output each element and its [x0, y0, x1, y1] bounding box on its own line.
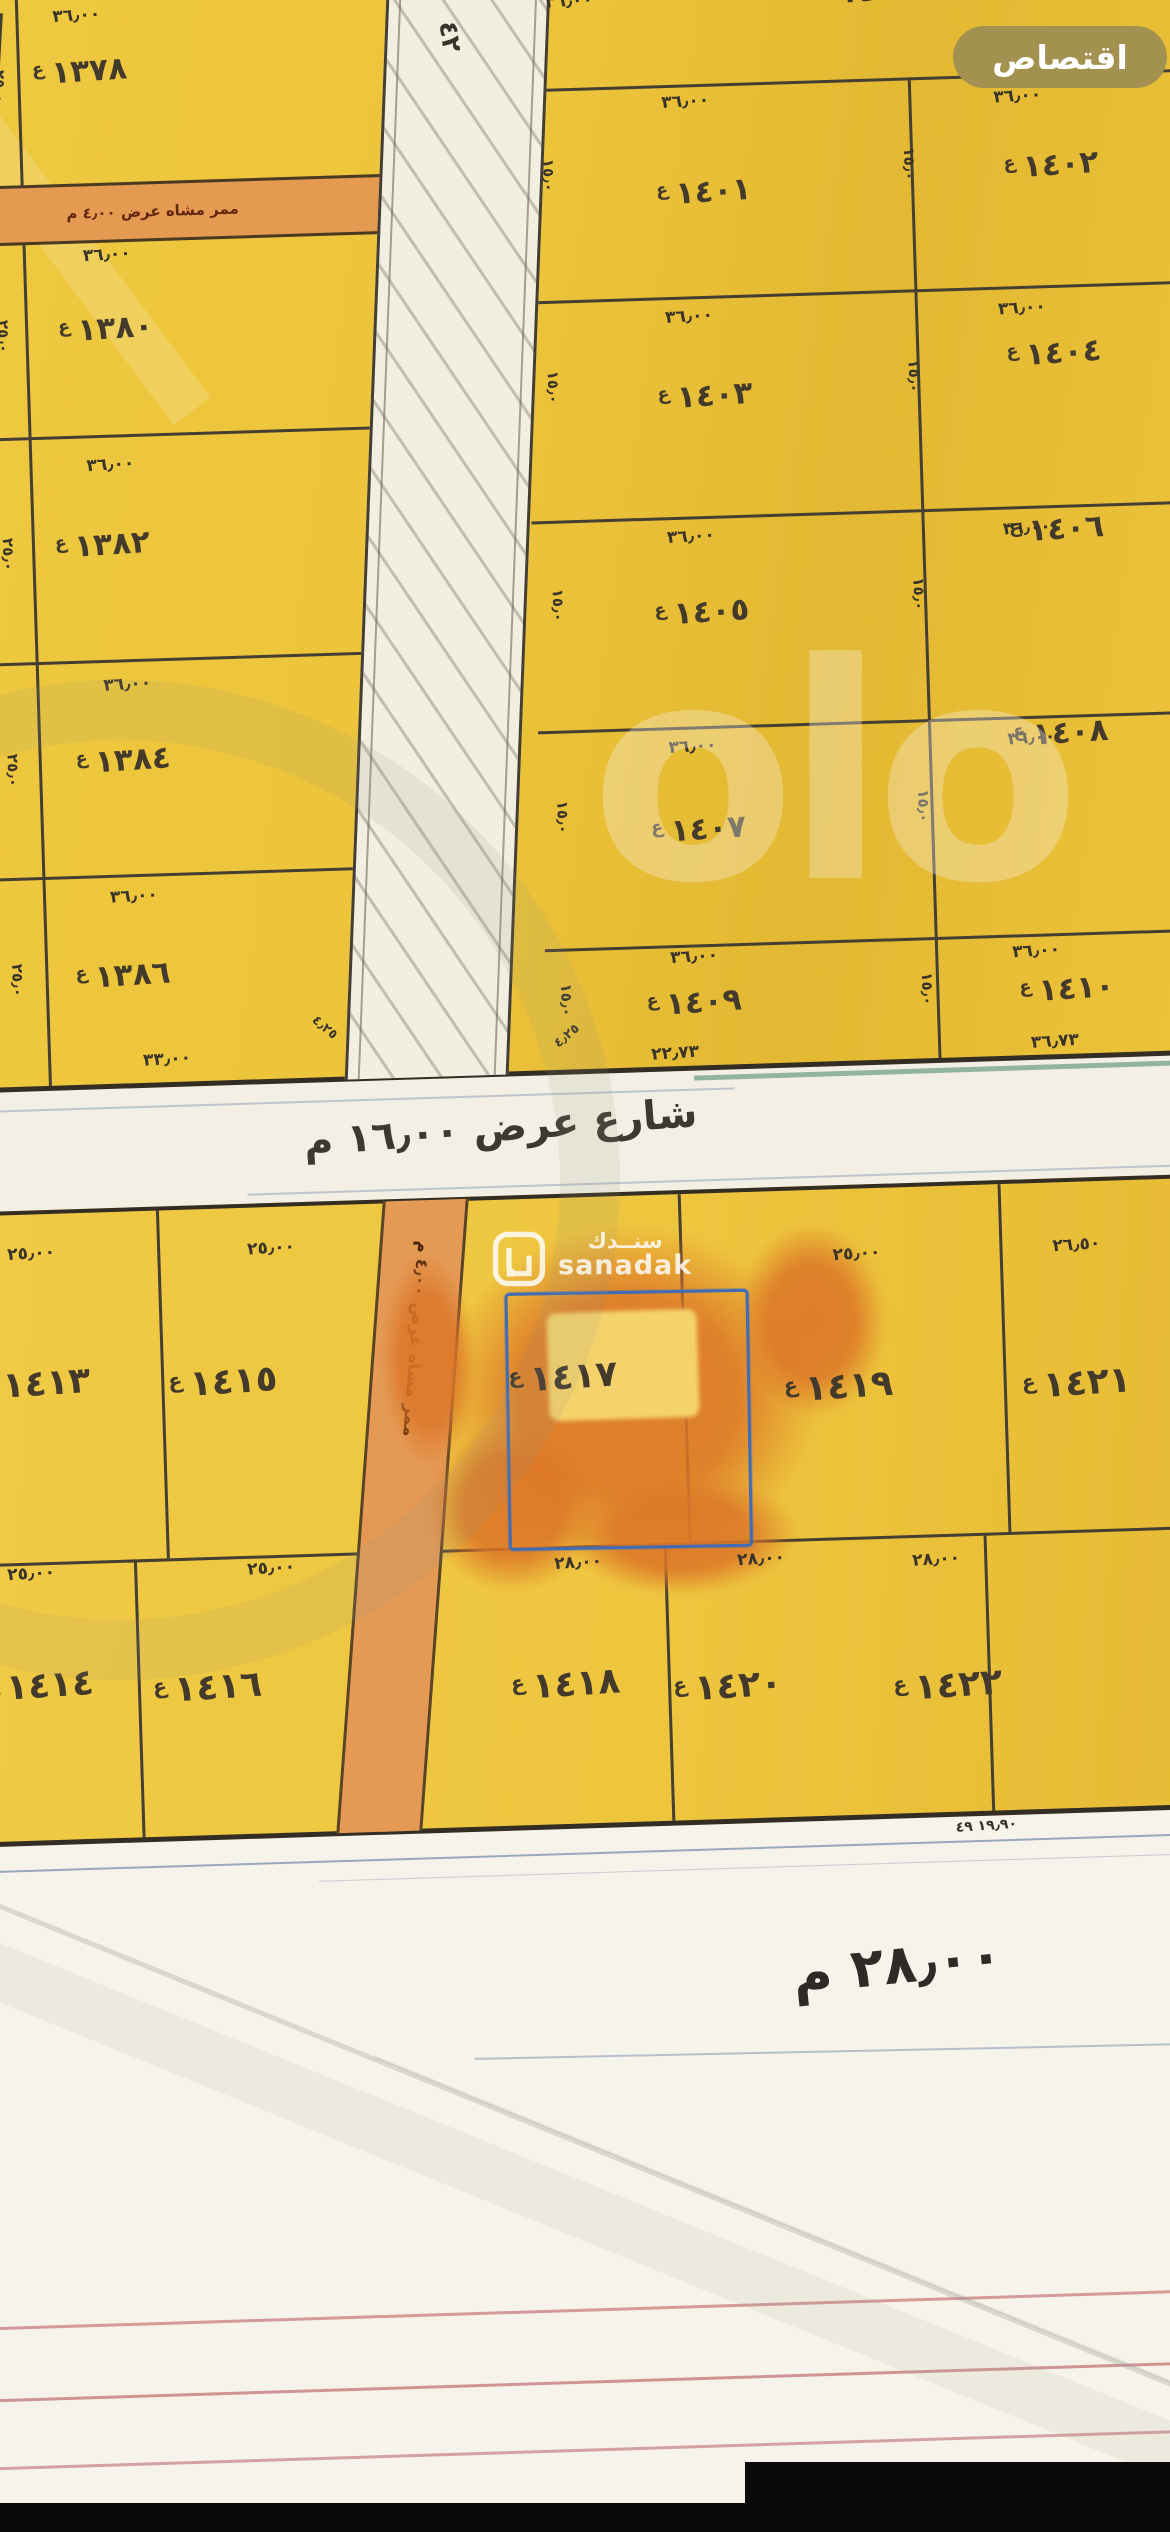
plot-number: ١٤١٩	[804, 1363, 894, 1410]
plot-side-dim: ١٥٫٠	[914, 789, 933, 823]
plot-side-dim: ١٥٫٠	[539, 158, 558, 192]
plot-number: ١٤٢١	[1042, 1359, 1132, 1406]
crop-badge-label: اقتصاص	[992, 38, 1128, 77]
plot-area-mark: ع	[57, 316, 71, 338]
sanadak-watermark: سنــدك sanadak	[492, 1230, 692, 1288]
plot-bottom-dim: ٣٦٫٧٣	[1030, 1030, 1079, 1053]
plot-top-dim: ٢٨٫٠٠	[737, 1547, 786, 1570]
plot-label-4: ع١٤١٠	[1018, 968, 1115, 1010]
plot-side-dim: ١٥٫٠	[900, 147, 919, 181]
plot-area-mark: ع	[672, 1672, 688, 1697]
sanadak-latin-label: sanadak	[558, 1252, 692, 1280]
plot-label-3: ع١٤٠٧	[650, 808, 747, 850]
plot-top-dim: ٣٦٫٠٠	[86, 453, 135, 476]
plot-area-mark: ع	[1021, 1369, 1037, 1394]
plot-side-dim: ١٥٫٠	[905, 359, 924, 393]
plot-number: ١٤١٠	[1038, 968, 1116, 1009]
plot-side-dim: ٢٥٫٠	[0, 320, 13, 354]
plot-label-4: ع١٤٢١	[1021, 1359, 1133, 1407]
plot-bottom-dim: ٢٢٫٧٣	[651, 1042, 700, 1065]
plot-number: ١٣٧٨	[50, 50, 128, 91]
plot-label-1: ع١٤٠٣	[657, 375, 754, 417]
plot-top-dim: ٣٦٫٠٠	[666, 525, 715, 548]
screenshot-root: { "badge": { "label": "اقتصاص" }, "water…	[0, 0, 1170, 2532]
plot-label-3: ع١٤٢٠	[672, 1662, 784, 1710]
plot-area-mark: ع	[892, 1671, 908, 1696]
plot-number: ١٣٨٢	[73, 524, 151, 565]
plot-area-mark: ع	[657, 383, 671, 405]
plot-side-dim: ٢٥٫٠	[0, 538, 18, 572]
plot-label-2: ع١٤٠٥	[653, 591, 750, 633]
plot-top-dim: ٢٨٫٠٠	[912, 1548, 961, 1571]
plot-number: ١٤٠١	[674, 171, 752, 212]
plot-top-dim: ٢٥٫٠٠	[832, 1242, 881, 1265]
plot-label-1: ع١٣٨٠	[57, 308, 154, 350]
plot-label-1: ع١٤٠٤	[1005, 332, 1102, 374]
plot-area-mark: ع	[1006, 340, 1020, 362]
sanadak-arabic-label: سنــدك	[558, 1230, 692, 1252]
plot-top-dim: ٣٦٫٠٠	[668, 735, 717, 758]
plot-side-dim: ١٥٫٠	[544, 370, 563, 404]
plot-label-2: ع١٤١٨	[510, 1660, 622, 1708]
plot-number: ١٤٠٤	[1025, 332, 1103, 373]
plot-top-dim: ٣٦٫٠٠	[82, 243, 131, 266]
plot-area-mark: ع	[646, 989, 660, 1011]
plot-top-dim: ٣٦٫٠٠	[1012, 939, 1061, 962]
plot-label-2: ع١٣٨٢	[54, 524, 151, 566]
plot-side-dim: ١٥٫٠	[549, 588, 568, 622]
bottom-street-area	[0, 1805, 1170, 2532]
plot-number: ١٤٢٢	[913, 1661, 1003, 1708]
plot-label-0: ع١٣٧٨	[31, 50, 128, 92]
plot-label-4: ع١٤٠٩	[646, 981, 743, 1023]
plot-area-mark: ع	[510, 1670, 526, 1695]
plot-area-mark: ع	[650, 816, 664, 838]
plot-side-dim: ١٥٫٠	[909, 577, 928, 611]
bottom-black-bar	[0, 2503, 1170, 2532]
plot-label-4: ع١٤٢٢	[892, 1661, 1004, 1709]
plot-label-0: ع١٤٠٢	[1002, 144, 1099, 186]
crop-badge[interactable]: اقتصاص	[953, 26, 1167, 88]
plot-side-dim: ١٥٫٠	[918, 972, 937, 1006]
plot-number: ١٤٢٠	[693, 1662, 783, 1709]
plot-top-dim: ٢٦٫٥٠	[1052, 1233, 1101, 1256]
plot-number: ١٤٠٣	[676, 375, 754, 416]
plot-side-dim: ١٥٫٠	[553, 800, 572, 834]
pedestrian-strip-label: ممر مشاه عرض ٤٫٠٠ م	[66, 200, 239, 223]
plot-top-dim: ٣٦٫٠٠	[664, 305, 713, 328]
plot-area-mark: ع	[1018, 976, 1032, 998]
plot-number: ١٤٠٥	[673, 591, 751, 632]
plot-top-dim: ٣٦٫٠٠	[52, 4, 101, 27]
plot-top-dim: ٣٦٫٠٠	[1007, 726, 1056, 749]
plot-top-dim: ٣٦٫٠٠	[661, 90, 710, 113]
plot-label-3: ع١٤١٩	[783, 1363, 895, 1411]
plot-area-mark: ع	[783, 1372, 799, 1397]
plot-top-dim: ٣٦٫٠٠	[670, 945, 719, 968]
plot-number: ١٤٠٩	[665, 981, 743, 1022]
plot-number: ١٤١٨	[531, 1660, 621, 1707]
plot-area-mark: ع	[54, 532, 68, 554]
plot-top-dim: ٢٨٫٠٠	[554, 1551, 603, 1574]
plot-area-mark: ع	[653, 599, 667, 621]
plot-area-mark: ع	[655, 179, 669, 201]
plot-number: ١٣٨٠	[76, 308, 154, 349]
plot-number: ١٤٠٧	[669, 808, 747, 849]
plot-top-dim: ٣٦٫٠٠	[997, 296, 1046, 319]
street-top-label: ٤٢	[433, 18, 467, 55]
plot-side-dim: ٢٥٫٠	[0, 70, 9, 104]
plot-top-dim: ٣٦٫٠٠	[1002, 516, 1051, 539]
plot-label-0: ع١٤٠١	[655, 171, 752, 213]
sanadak-logo-icon	[492, 1230, 546, 1288]
plot-area-mark: ع	[31, 58, 45, 80]
plot-number: ١٤٠٢	[1022, 144, 1100, 185]
plot-area-mark: ع	[1003, 152, 1017, 174]
